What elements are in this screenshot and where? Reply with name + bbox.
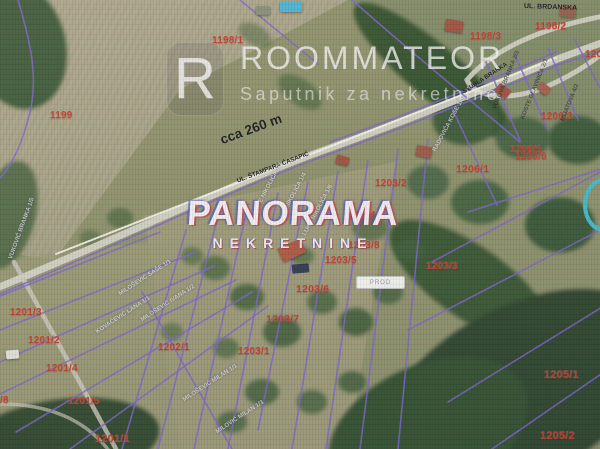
parcel-number-label: 120 bbox=[585, 49, 600, 60]
parcel-number-label: 1201/4 bbox=[46, 363, 78, 374]
parcel-number-label: /8 bbox=[0, 395, 9, 406]
parcel-number-label: 1202/1 bbox=[158, 342, 190, 353]
parcel-number-label: 1201/3 bbox=[10, 307, 42, 318]
parcel-number-label: 1203/4 bbox=[344, 210, 376, 221]
parcel-number-label: 1198/2 bbox=[535, 21, 566, 32]
parcel-number-label: 1199 bbox=[50, 110, 73, 121]
parcel-number-label: 1203/6 bbox=[296, 283, 329, 295]
sold-label-box: PROD bbox=[356, 276, 405, 289]
parcel-number-label: 1201/1 bbox=[95, 433, 130, 445]
satellite-cadastral-map[interactable]: PROD 1198/111991198/31198/21201206/31206… bbox=[0, 0, 600, 449]
parcel-number-label: 1205/1 bbox=[544, 369, 579, 381]
parcel-number-label: 1198/1 bbox=[212, 35, 243, 46]
owner-strip-label: VUKOVA BRANKA 2/3 bbox=[492, 50, 521, 110]
parcel-number-label: 1198/3 bbox=[470, 31, 501, 42]
parcel-number-label: 1201/5 bbox=[68, 396, 100, 407]
parcel-number-label: 1203/7 bbox=[266, 313, 299, 325]
owner-strip-label: MILOŠEVIĆ MILAN 1/1 bbox=[182, 363, 239, 403]
parcel-number-label: 1203/1 bbox=[238, 346, 270, 357]
owner-strip-label: MILOŠEVIĆ SAŠE 1/1 bbox=[118, 259, 172, 297]
owner-strip-label: LUKE NIKOLIĆA 1/4 bbox=[276, 172, 308, 225]
street-label: cca 260 m bbox=[218, 111, 284, 147]
street-label: UL. BRDANSKA bbox=[524, 3, 577, 12]
sold-label-text: PROD bbox=[370, 280, 391, 286]
parcel-number-label: 1206/1 bbox=[456, 163, 489, 175]
parcel-number-label: 1203/5 bbox=[325, 255, 357, 266]
parcel-number-label: 1201/2 bbox=[28, 335, 60, 346]
owner-strip-label: LUKE NIKOLIĆA 1/6 bbox=[302, 184, 334, 237]
parcel-number-label: 1203/2 bbox=[375, 178, 407, 189]
owner-strip-label: VUKOVIĆ BRANKA 1/5 bbox=[8, 197, 36, 260]
parcel-number-label: 1205/2 bbox=[540, 430, 575, 442]
owner-strip-label: MILOVIĆ MILAN 1/3 bbox=[215, 400, 265, 435]
map-labels-layer: PROD 1198/111991198/31198/21201206/31206… bbox=[0, 0, 600, 449]
parcel-number-label: 1203/8 bbox=[348, 240, 380, 251]
owner-strip-label: RADOVIĆA KOSE 1/3 bbox=[432, 97, 466, 153]
parcel-number-label: 1203/3 bbox=[426, 261, 458, 272]
owner-strip-label: MILOŠEVIĆ IVANA 1/2 bbox=[140, 284, 196, 323]
parcel-number-label: 1206/6 bbox=[515, 151, 547, 162]
map-label-box bbox=[292, 263, 310, 273]
